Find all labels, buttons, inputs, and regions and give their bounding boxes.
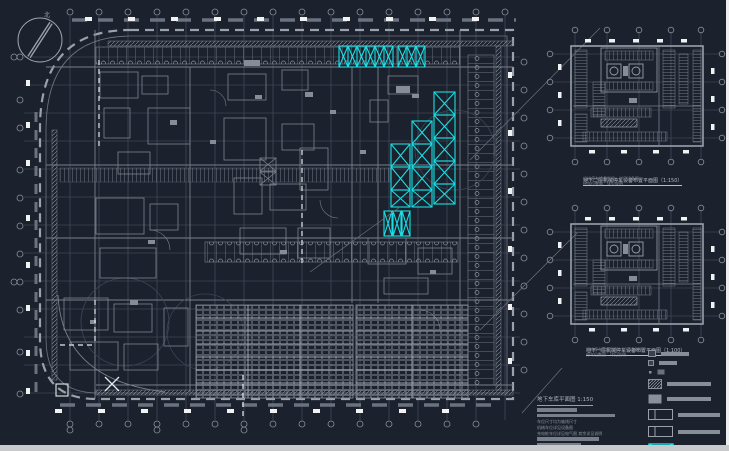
notes-title: 地下车库平面图 1:150	[537, 397, 593, 406]
small-square-icon	[648, 360, 654, 366]
cad-drawing	[0, 0, 729, 451]
legend-label-bar	[659, 361, 677, 365]
main-floor-plan	[11, 9, 600, 433]
legend-row-1	[648, 350, 728, 357]
dot-square-icon	[657, 369, 665, 375]
legend-label-bar	[667, 382, 711, 386]
north-arrow-icon	[18, 18, 62, 62]
standard-stall-icon	[648, 409, 673, 420]
solid-square-icon	[648, 394, 662, 404]
legend-row-4	[648, 379, 728, 389]
legend-label-bar	[661, 352, 689, 356]
cyan-cluster-bottom-trio	[384, 211, 410, 236]
plan-a-note-2: 停车位数量：详见说明	[583, 181, 623, 186]
legend-header-square-icon	[648, 350, 656, 357]
cyan-cluster-column-c	[391, 144, 410, 207]
legend-row-6	[648, 409, 728, 420]
notes-bar-3	[537, 437, 599, 441]
legend-row-2	[648, 360, 728, 366]
notes-block: 地下车库平面图 1:150 车位尺寸均为轴线尺寸 机械车位详见设备图 充电桩车位…	[537, 386, 645, 448]
legend-row-3	[648, 369, 728, 375]
north-label: 北	[44, 10, 50, 19]
plan-b-note-2: 停车位数量：详见说明	[586, 352, 626, 357]
legend-label-bar	[678, 413, 720, 417]
dot-icon	[648, 370, 652, 374]
window-edge-bottom	[0, 445, 729, 451]
notes-bar-2	[537, 414, 615, 418]
dense-rack-blocks	[196, 305, 468, 398]
legend-label-bar	[667, 397, 711, 401]
detail-plan-b	[547, 205, 725, 343]
notes-text-2: 机械车位详见设备图	[537, 425, 645, 430]
cyan-cluster-column-a	[434, 92, 455, 204]
notes-text-1: 车位尺寸均为轴线尺寸	[537, 419, 645, 424]
notes-bar-1	[537, 408, 577, 412]
legend	[648, 350, 728, 451]
legend-label-bar	[678, 430, 720, 434]
legend-row-7	[648, 426, 728, 437]
notes-text-3: 充电桩车位详见电气图 其余详见说明	[537, 431, 645, 436]
standard-stall-icon-2	[648, 426, 673, 437]
detail-plan-a	[547, 27, 725, 165]
legend-row-5	[648, 394, 728, 404]
cyan-cluster-column-b	[412, 121, 432, 207]
hatched-square-icon	[648, 379, 662, 389]
cad-viewport[interactable]: 北 地下二层机械停车设备布置平面图（1:150） 机械停车设备型号：详见设备图 …	[0, 0, 729, 451]
